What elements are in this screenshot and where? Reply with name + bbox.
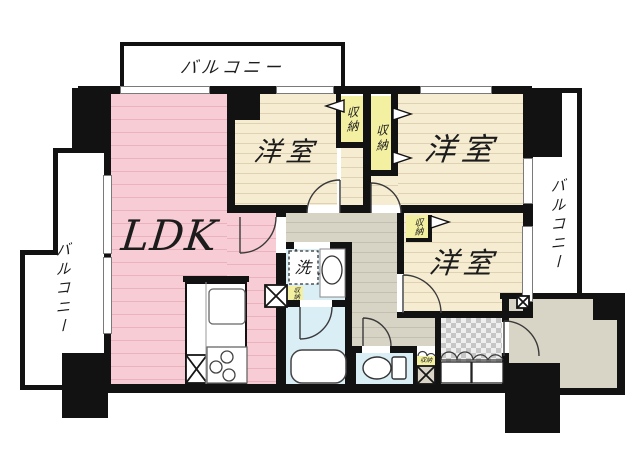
window <box>523 158 533 204</box>
wall <box>413 346 417 384</box>
bedroom-2-floor-nook <box>371 176 398 205</box>
window <box>420 86 492 94</box>
door-opening <box>371 205 401 213</box>
wall <box>617 293 625 395</box>
closet-hall-label: 収納 <box>417 356 436 365</box>
wall <box>577 88 582 298</box>
bedroom-1-floor-nook <box>341 148 363 205</box>
closet-washroom-label: 収納 <box>288 285 303 301</box>
door-opening <box>362 346 390 353</box>
washer-label: 洗 <box>286 252 319 283</box>
pillar <box>72 88 108 152</box>
door-opening <box>300 300 332 307</box>
shoe-cabinet <box>441 362 503 383</box>
balcony-left-border <box>20 385 67 390</box>
toilet-floor <box>350 353 413 384</box>
balcony-left-border <box>20 250 25 390</box>
balcony-left-border <box>53 148 106 153</box>
entry-hall-floor <box>352 318 437 346</box>
ldk-label: LDK <box>109 210 229 262</box>
door-opening <box>307 205 340 213</box>
bedroom-1-label: 洋室 <box>233 134 339 170</box>
closet-2-label: 収納 <box>372 109 391 169</box>
kitchen-counter <box>185 282 247 384</box>
door-opening <box>276 217 286 253</box>
closet-3-label: 収納 <box>407 214 427 240</box>
wall <box>397 311 532 318</box>
wall <box>363 94 371 213</box>
floorplan: バルコニー バルコニー バルコニー LDK 洋室 洋室 洋室 収納 収納 収納 … <box>0 0 640 455</box>
door-opening <box>294 242 330 249</box>
balcony-top-label: バルコニー <box>119 56 347 80</box>
closet-1-label: 収納 <box>342 98 362 142</box>
pillar <box>593 293 617 320</box>
wall <box>502 293 509 322</box>
duct-box <box>417 366 435 384</box>
wall <box>435 318 441 384</box>
window <box>276 86 334 94</box>
wall <box>62 384 508 393</box>
balcony-left-label: バルコニー <box>48 211 76 369</box>
window <box>103 257 112 334</box>
window <box>522 226 533 302</box>
balcony-right-label: バルコニー <box>543 154 571 297</box>
pillar <box>505 363 560 433</box>
entrance-tile <box>441 318 503 362</box>
bathroom-floor <box>286 307 345 384</box>
corridor-floor <box>352 243 397 318</box>
bedroom-2-label: 洋室 <box>396 130 527 170</box>
bedroom-3-label: 洋室 <box>402 244 525 282</box>
wall <box>502 353 509 391</box>
wall <box>560 388 617 395</box>
wall <box>350 346 356 384</box>
window <box>120 86 210 94</box>
door-opening <box>502 322 509 353</box>
